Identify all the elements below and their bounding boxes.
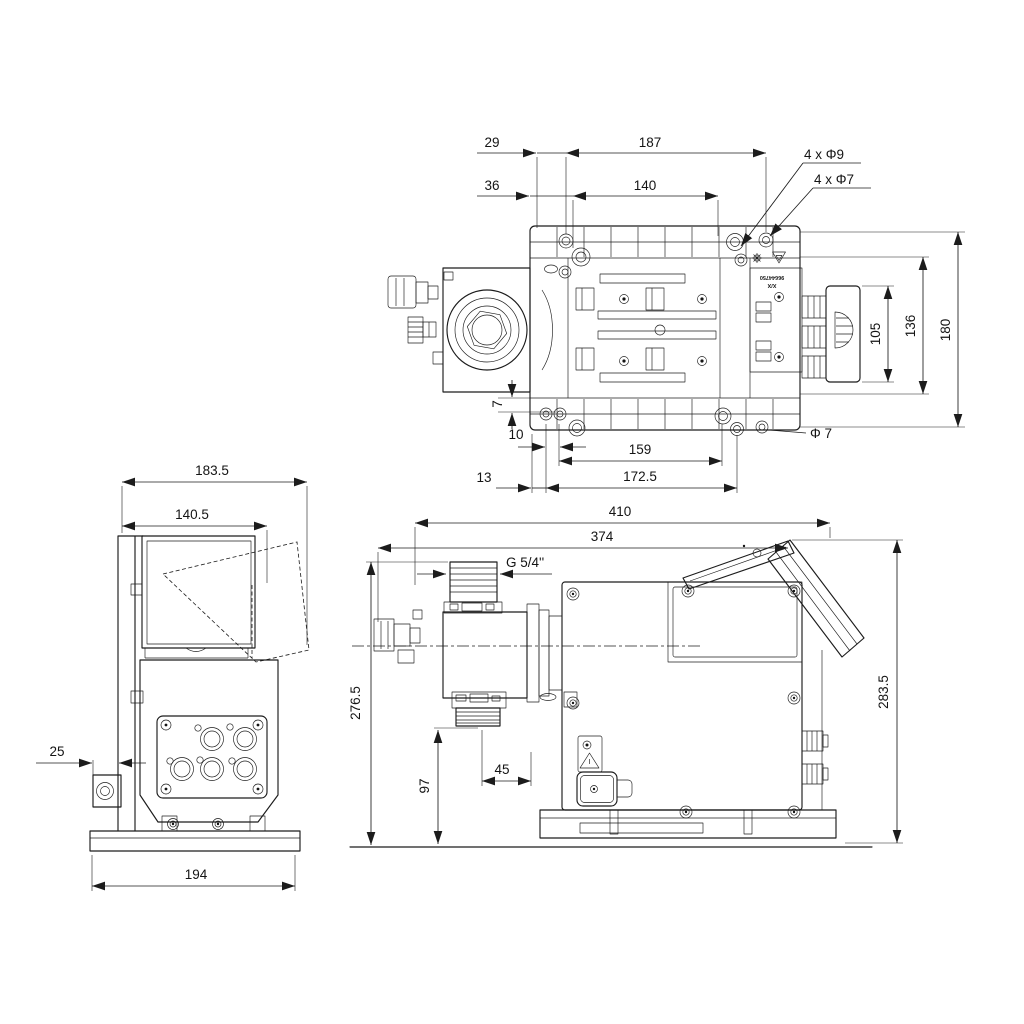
dim-45: 45: [482, 730, 531, 786]
wall-bracket: [93, 775, 121, 807]
dim-105: 105: [862, 286, 894, 382]
dim-140-label: 140: [634, 178, 657, 193]
gear-icon: [752, 253, 762, 263]
dim-374: 374: [378, 529, 788, 622]
warning-label: [578, 736, 602, 772]
dim-194: 194: [92, 855, 295, 891]
dim-29-label: 29: [484, 135, 499, 150]
hole-top-left: [545, 234, 591, 278]
plate-grid: [542, 227, 773, 429]
plate-slots: [598, 274, 716, 382]
dim-7-label: 7: [490, 400, 505, 408]
discharge-valve: [444, 562, 502, 613]
dim-105-label: 105: [868, 323, 883, 346]
dim-136: 136: [800, 257, 929, 394]
suction-valve: [452, 692, 506, 726]
front-view: 410 374 G 5/4'' 276.5 283.5 97: [348, 504, 903, 847]
dim-187-label: 187: [639, 135, 662, 150]
dim-187: 187: [566, 135, 766, 232]
dim-374-label: 374: [591, 529, 614, 544]
plate-screws: [620, 295, 707, 366]
dim-194-label: 194: [185, 867, 208, 882]
adjust-knob: [408, 317, 436, 343]
dim-283_5-label: 283.5: [876, 675, 891, 709]
part-marking: X/X 96644750: [760, 274, 784, 288]
dim-410: 410: [415, 504, 830, 585]
dim-180-label: 180: [938, 319, 953, 342]
side-tab: [433, 352, 443, 364]
side-body: [90, 536, 309, 851]
gland-ports: [167, 724, 257, 781]
dim-97: 97: [417, 728, 478, 844]
drain-plate: [577, 772, 632, 806]
callout-phi7: Φ 7: [769, 426, 832, 441]
dosing-pump-dimension-drawing: X/X 96644750: [0, 0, 1024, 1024]
part-marking-number: 96644750: [760, 274, 784, 280]
dim-136-label: 136: [903, 315, 918, 338]
dim-410-label: 410: [609, 504, 632, 519]
top-view: X/X 96644750: [388, 135, 965, 493]
mounting-holes: [540, 233, 773, 436]
gland-panel: [157, 716, 267, 798]
base-rail: [350, 810, 872, 847]
motor-cable-gland: [374, 610, 422, 663]
dim-25: 25: [36, 744, 146, 777]
dim-159-label: 159: [629, 442, 652, 457]
dim-10-label: 10: [508, 427, 523, 442]
pump-head-top: [388, 268, 530, 392]
dim-25-label: 25: [49, 744, 64, 759]
dim-283_5: 283.5: [792, 540, 903, 843]
dim-276_5: 276.5: [348, 562, 448, 845]
dim-172_5-label: 172.5: [623, 469, 657, 484]
dim-36: 36: [477, 178, 718, 248]
connector-glands: [802, 296, 826, 378]
dim-276_5-label: 276.5: [348, 686, 363, 720]
callout-phi7-label: Φ 7: [810, 426, 832, 441]
main-housing: [540, 582, 828, 818]
base-plate: [90, 831, 300, 851]
dim-140_5-label: 140.5: [175, 507, 209, 522]
dim-36-label: 36: [484, 178, 499, 193]
callout-4xphi9-label: 4 x Φ9: [804, 147, 844, 162]
dim-13: 13: [476, 434, 546, 493]
control-unit-top: [802, 286, 860, 382]
hole-bottom-right: [715, 408, 768, 436]
dim-97-label: 97: [417, 778, 432, 793]
side-cable-glands: [802, 731, 828, 784]
callout-4xphi9: 4 x Φ9: [741, 147, 861, 246]
dim-183_5-label: 183.5: [195, 463, 229, 478]
dosing-head: [374, 562, 562, 726]
base-screws: [168, 819, 224, 830]
recycling-triangle-icon: [773, 252, 786, 263]
dim-thread-label: G 5/4'': [506, 555, 544, 570]
technical-drawing-page: X/X 96644750: [0, 0, 1024, 1024]
opened-lid: [683, 540, 864, 657]
part-marking-variant: X/X: [767, 282, 776, 288]
dim-140_5: 140.5: [122, 507, 267, 583]
dim-183_5: 183.5: [122, 463, 307, 645]
housing-screws: [567, 585, 800, 818]
dim-140: 140: [573, 178, 718, 196]
mounting-plate: X/X 96644750: [530, 226, 802, 436]
side-view: 183.5 140.5 25 194: [36, 463, 309, 891]
dim-7: 7: [490, 380, 556, 429]
callout-4xphi7-label: 4 x Φ7: [814, 172, 854, 187]
dim-10: 10: [508, 424, 586, 493]
dim-thread: G 5/4'': [417, 555, 552, 574]
dim-13-label: 13: [476, 470, 491, 485]
dim-45-label: 45: [494, 762, 509, 777]
